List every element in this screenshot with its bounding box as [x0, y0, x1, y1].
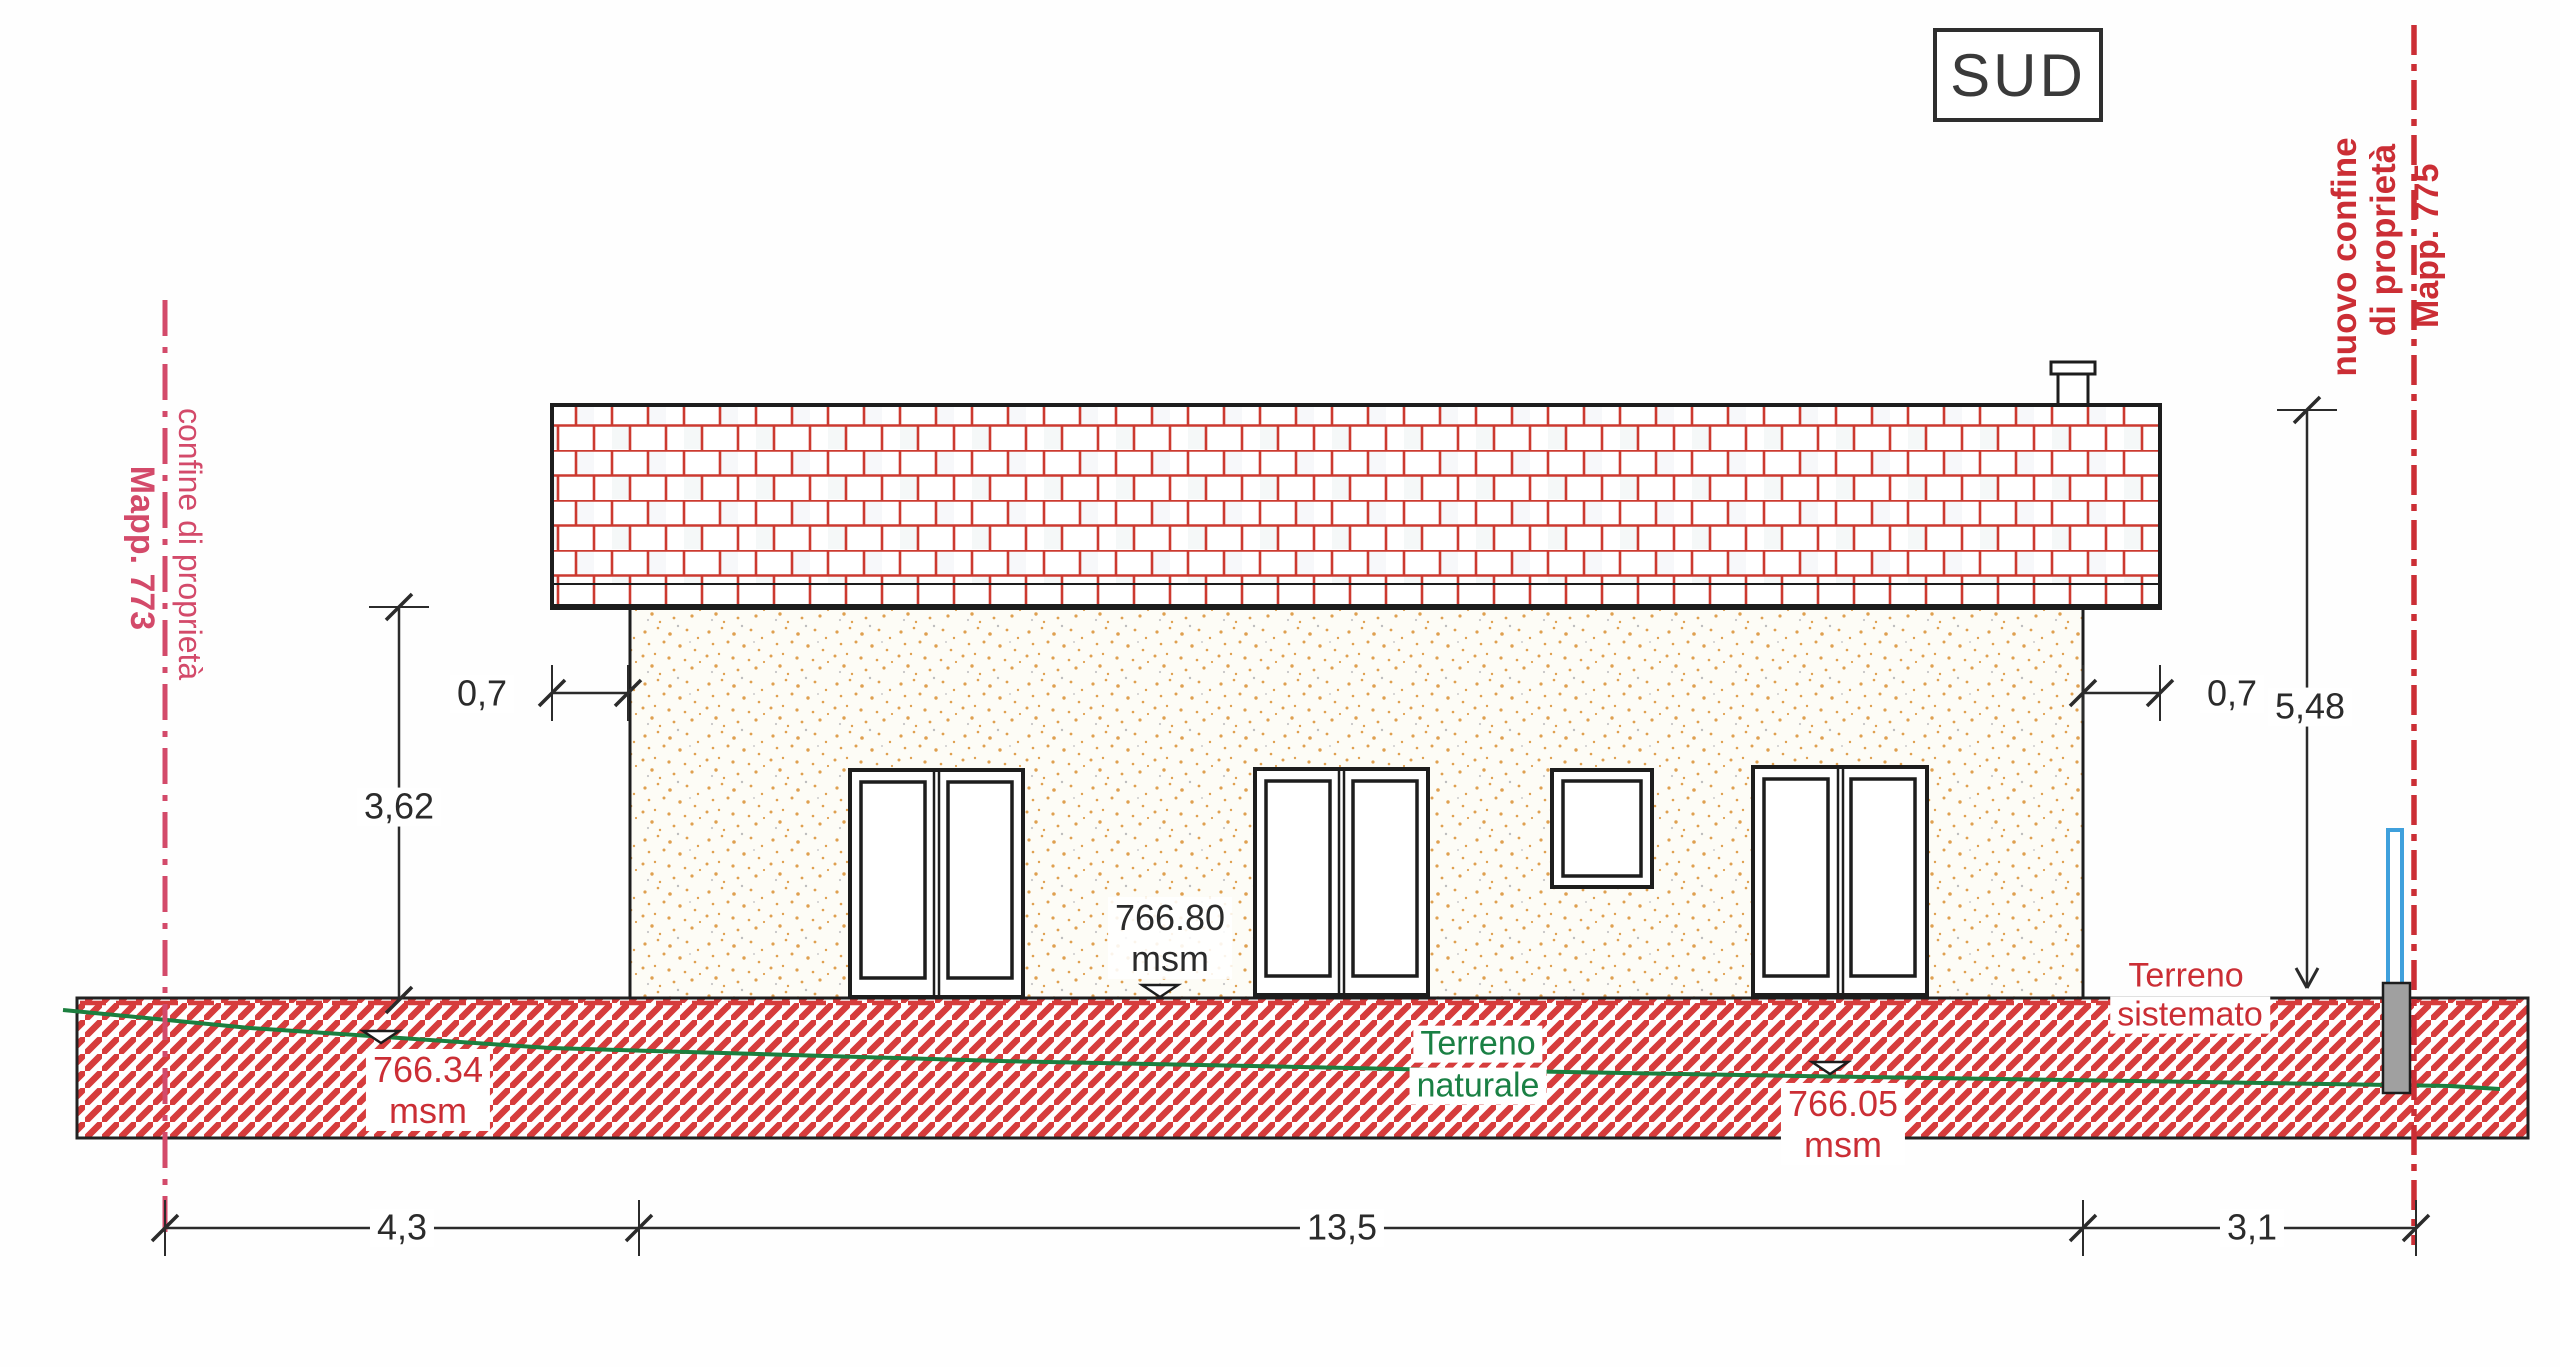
boundary-left-parcel: Mapp. 773	[122, 463, 162, 633]
dim-setback-right: 3,1	[2220, 1209, 2284, 1248]
roof	[552, 405, 2160, 608]
level-terrain-right: 766.05 msm	[1781, 1083, 1905, 1165]
dim-eaves-height: 3,62	[357, 788, 441, 827]
small-window	[1552, 770, 1652, 887]
dim-overhang-left: 0,7	[450, 675, 514, 714]
drawing-graphics	[0, 0, 2560, 1367]
stake-post	[2383, 983, 2410, 1093]
level-terrain-left-value: 766.34	[373, 1049, 483, 1090]
dim-ridge-height: 5,48	[2268, 688, 2352, 727]
level-floor: 766.80 msm	[1108, 897, 1232, 979]
boundary-right-label-line1: nuovo confine	[2325, 127, 2365, 387]
boundary-stake	[2383, 830, 2410, 1093]
chimney	[2051, 362, 2095, 406]
level-floor-unit: msm	[1131, 938, 1209, 979]
building	[552, 362, 2160, 998]
french-door-1	[850, 770, 1023, 997]
orientation-label: SUD	[1950, 41, 2086, 110]
orientation-box: SUD	[1933, 28, 2103, 122]
elevation-drawing-south: SUD confine di proprietà Mapp. 773 nuovo…	[0, 0, 2560, 1367]
roof-fascia	[554, 584, 2158, 606]
boundary-right-parcel: Mapp. 775	[2407, 168, 2447, 328]
level-terrain-left-unit: msm	[389, 1090, 467, 1131]
french-door-2	[1255, 769, 1428, 995]
french-door-3	[1753, 767, 1927, 995]
level-terrain-left: 766.34 msm	[366, 1049, 490, 1131]
stake-rod	[2388, 830, 2402, 985]
boundary-right-label-line2: di proprietà	[2364, 130, 2404, 350]
dim-building-width: 13,5	[1300, 1209, 1384, 1248]
terreno-sistemato-line1: Terreno	[2128, 958, 2243, 995]
terreno-naturale-line2: naturale	[1410, 1068, 1547, 1105]
level-floor-value: 766.80	[1115, 897, 1225, 938]
terreno-naturale-line1: Terreno	[1413, 1026, 1542, 1063]
dim-overhang-right: 0,7	[2200, 675, 2264, 714]
terreno-sistemato-line2: sistemato	[2110, 997, 2270, 1034]
dim-setback-left: 4,3	[370, 1209, 434, 1248]
level-terrain-right-value: 766.05	[1788, 1083, 1898, 1124]
level-terrain-right-unit: msm	[1804, 1124, 1882, 1165]
boundary-left-label: confine di proprietà	[170, 408, 210, 678]
